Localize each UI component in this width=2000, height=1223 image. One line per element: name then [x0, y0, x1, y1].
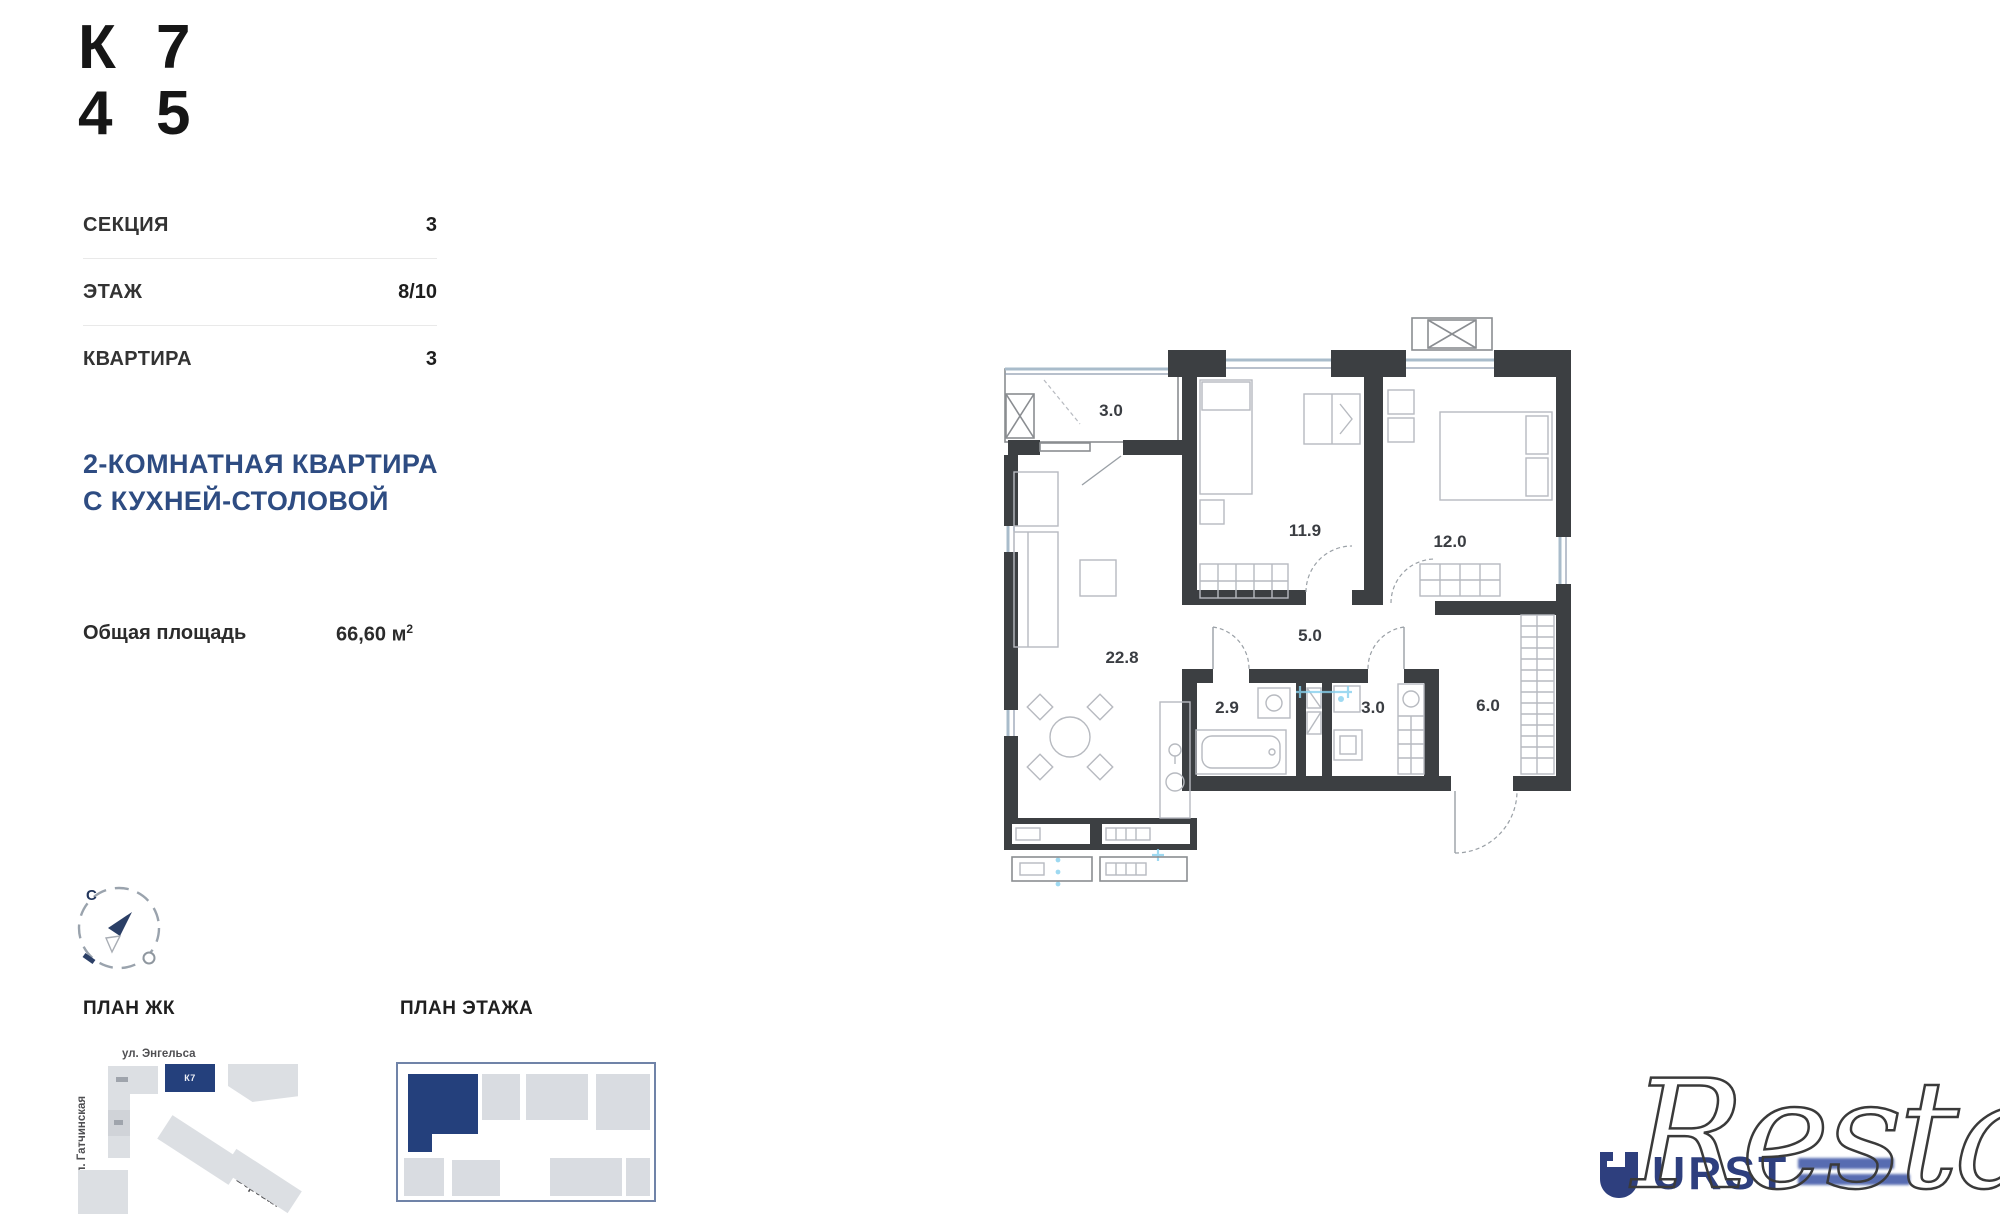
thumb-unit: [452, 1160, 500, 1196]
table-row: ЭТАЖ 8/10: [83, 258, 437, 325]
room-label-bedroom1: 11.9: [1289, 521, 1321, 540]
row-value: 8/10: [398, 281, 437, 304]
floorplan-sheet: К 7 4 5 СЕКЦИЯ 3 ЭТАЖ 8/10 КВАРТИРА 3 2-…: [0, 0, 2000, 1223]
thumb-unit: [404, 1158, 444, 1196]
thumb-unit: [482, 1074, 520, 1120]
balcony: [1005, 369, 1178, 442]
map-building: [78, 1170, 128, 1214]
watermark: Restate: [1632, 1058, 2000, 1216]
building-code-cell: 7: [156, 16, 234, 82]
street-label-top: ул. Энгельса: [122, 1048, 196, 1060]
table-row: СЕКЦИЯ 3: [83, 192, 437, 258]
title-line: С КУХНЕЙ-СТОЛОВОЙ: [83, 483, 438, 520]
map-building: [228, 1064, 298, 1102]
thumb-unit: [550, 1158, 622, 1196]
compass-icon: С: [70, 878, 166, 974]
floor-thumbnail: [396, 1062, 656, 1202]
furniture-bathroom: [1196, 688, 1290, 774]
building-code-cell: К: [78, 16, 156, 82]
building-code-cell: 5: [156, 82, 234, 148]
compass-north-label: С: [86, 887, 97, 904]
title-line: 2-КОМНАТНАЯ КВАРТИРА: [83, 446, 438, 483]
compass-needle-south: [106, 936, 120, 952]
walls: [1004, 350, 1571, 850]
compass-needle-north: [108, 912, 132, 936]
floor-plan-drawing: 3.0 22.8 11.9 12.0 5.0 2.9 3.0 6.0: [1000, 312, 1585, 897]
row-value: 3: [426, 348, 437, 371]
building-code: К 7 4 5: [78, 16, 234, 148]
site-map: ул. Энгельса ул. Гатчинская ул. Боровая …: [70, 1040, 310, 1223]
thumb-unit-highlighted: [408, 1134, 432, 1152]
floorplan-section-label: ПЛАН ЭТАЖА: [400, 998, 533, 1020]
furniture-bedroom-1: [1200, 380, 1360, 598]
row-label: КВАРТИРА: [83, 348, 192, 371]
room-label-bathroom: 2.9: [1215, 698, 1239, 717]
plumbing-shaft: [1307, 688, 1321, 734]
ac-unit-icon: [1412, 318, 1492, 350]
map-building: [108, 1110, 130, 1136]
thumb-unit: [626, 1158, 650, 1196]
total-area-value: 66,60 м2: [336, 622, 413, 647]
compass-ring-dot: [144, 953, 155, 964]
room-label-entry: 6.0: [1476, 696, 1500, 715]
row-label: СЕКЦИЯ: [83, 214, 169, 237]
row-value: 3: [426, 214, 437, 237]
room-label-kitchen: 22.8: [1105, 648, 1138, 667]
room-label-balcony: 3.0: [1099, 401, 1123, 420]
room-label-wc: 3.0: [1361, 698, 1385, 717]
furniture-entry-wardrobe: [1521, 615, 1554, 774]
furniture-kitchen-living: [1014, 472, 1190, 840]
total-area-label: Общая площадь: [83, 622, 246, 644]
row-label: ЭТАЖ: [83, 281, 142, 304]
thumb-unit: [526, 1074, 588, 1120]
room-label-hall: 5.0: [1298, 626, 1322, 645]
map-building: [108, 1066, 158, 1094]
room-label-bedroom2: 12.0: [1433, 532, 1466, 551]
page-title: 2-КОМНАТНАЯ КВАРТИРА С КУХНЕЙ-СТОЛОВОЙ: [83, 446, 438, 520]
sitemap-section-label: ПЛАН ЖК: [83, 998, 175, 1020]
table-row: КВАРТИРА 3: [83, 325, 437, 392]
apartment-info-table: СЕКЦИЯ 3 ЭТАЖ 8/10 КВАРТИРА 3: [83, 192, 437, 392]
building-code-cell: 4: [78, 82, 156, 148]
total-area-row: Общая площадь 66,60 м2: [83, 622, 437, 645]
street-label-left: ул. Гатчинская: [76, 1096, 88, 1180]
exterior-ledges: [1012, 857, 1187, 881]
map-building-highlighted: К7: [165, 1064, 215, 1092]
thumb-unit: [596, 1074, 650, 1130]
compass-ring-dash: [84, 955, 94, 962]
thumb-unit-highlighted: [408, 1074, 478, 1134]
